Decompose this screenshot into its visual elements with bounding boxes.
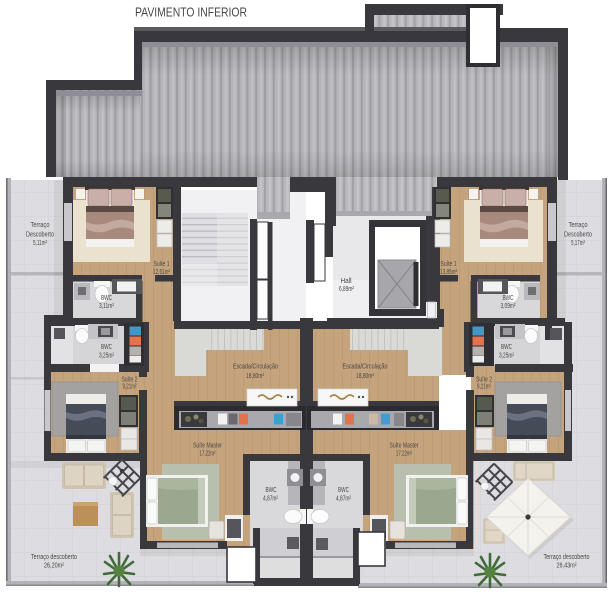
svg-text:17,22m²: 17,22m² bbox=[200, 451, 216, 458]
svg-text:17,22m²: 17,22m² bbox=[396, 451, 412, 458]
svg-text:Suíte 2: Suíte 2 bbox=[476, 377, 492, 384]
svg-text:26,20m²: 26,20m² bbox=[44, 563, 65, 570]
svg-text:9,21m²: 9,21m² bbox=[477, 384, 491, 391]
svg-text:18,80m²: 18,80m² bbox=[356, 373, 374, 380]
svg-text:5,17m²: 5,17m² bbox=[571, 240, 585, 247]
svg-text:4,87m²: 4,87m² bbox=[336, 496, 351, 503]
svg-text:BWC: BWC bbox=[503, 295, 514, 302]
svg-text:Descoberto: Descoberto bbox=[26, 232, 54, 239]
svg-text:BWC: BWC bbox=[266, 487, 277, 494]
svg-text:BWC: BWC bbox=[501, 344, 512, 351]
svg-text:13,85m²: 13,85m² bbox=[440, 269, 457, 276]
svg-text:PAVIMENTO INFERIOR: PAVIMENTO INFERIOR bbox=[135, 5, 247, 20]
svg-text:5,11m²: 5,11m² bbox=[33, 240, 47, 247]
svg-text:3,11m²: 3,11m² bbox=[99, 303, 114, 310]
svg-text:Terraço: Terraço bbox=[569, 222, 588, 229]
svg-text:Suíte 2: Suíte 2 bbox=[122, 377, 138, 384]
svg-text:Suíte 1: Suíte 1 bbox=[154, 261, 170, 268]
svg-text:BWC: BWC bbox=[101, 344, 112, 351]
svg-text:18,80m²: 18,80m² bbox=[246, 373, 264, 380]
svg-text:Suíte 1: Suíte 1 bbox=[441, 261, 457, 268]
svg-text:Escada/Circulação: Escada/Circulação bbox=[343, 364, 388, 371]
svg-text:3,25m²: 3,25m² bbox=[99, 353, 114, 360]
svg-text:3,09m²: 3,09m² bbox=[501, 303, 516, 310]
svg-text:4,87m²: 4,87m² bbox=[263, 496, 278, 503]
svg-text:Suíte Master: Suíte Master bbox=[390, 443, 419, 450]
svg-text:9,21m²: 9,21m² bbox=[123, 384, 137, 391]
svg-text:12,61m²: 12,61m² bbox=[153, 269, 170, 276]
svg-text:6,89m²: 6,89m² bbox=[339, 286, 354, 293]
svg-text:Terraço: Terraço bbox=[31, 222, 50, 229]
svg-text:BWC: BWC bbox=[338, 487, 349, 494]
svg-text:Terraço descoberto: Terraço descoberto bbox=[544, 554, 590, 561]
svg-text:BWC: BWC bbox=[101, 295, 112, 302]
svg-text:Escada/Circulação: Escada/Circulação bbox=[233, 364, 278, 371]
svg-text:3,25m²: 3,25m² bbox=[499, 353, 514, 360]
svg-text:Descoberto: Descoberto bbox=[564, 232, 592, 239]
svg-text:Terraço descoberto: Terraço descoberto bbox=[31, 554, 77, 561]
svg-text:Hall: Hall bbox=[341, 278, 352, 285]
svg-text:26,43m²: 26,43m² bbox=[557, 563, 578, 570]
svg-text:Suíte Master: Suíte Master bbox=[193, 443, 222, 450]
